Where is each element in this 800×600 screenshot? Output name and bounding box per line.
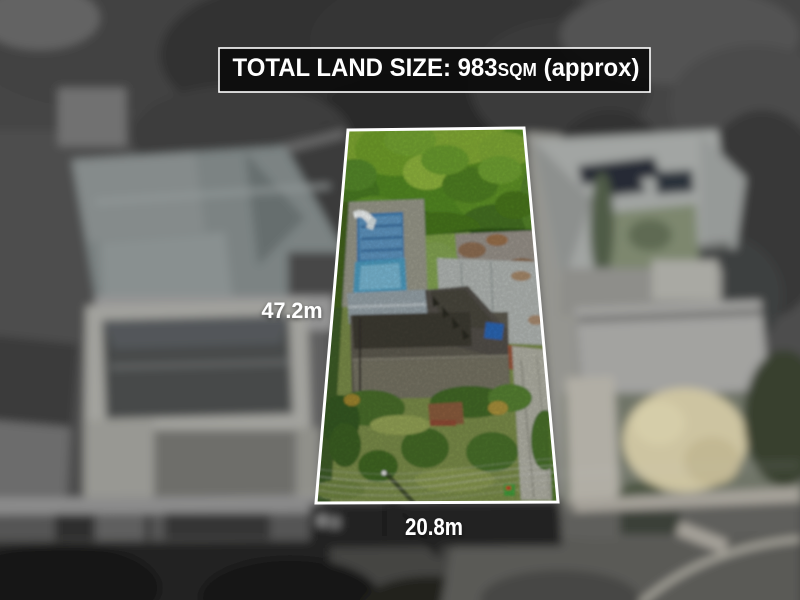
svg-text:47.2m: 47.2m	[262, 298, 323, 323]
svg-text:TOTAL LAND SIZE: 983SQM (appro: TOTAL LAND SIZE: 983SQM (approx)	[233, 54, 640, 82]
svg-text:20.8m: 20.8m	[405, 514, 463, 541]
